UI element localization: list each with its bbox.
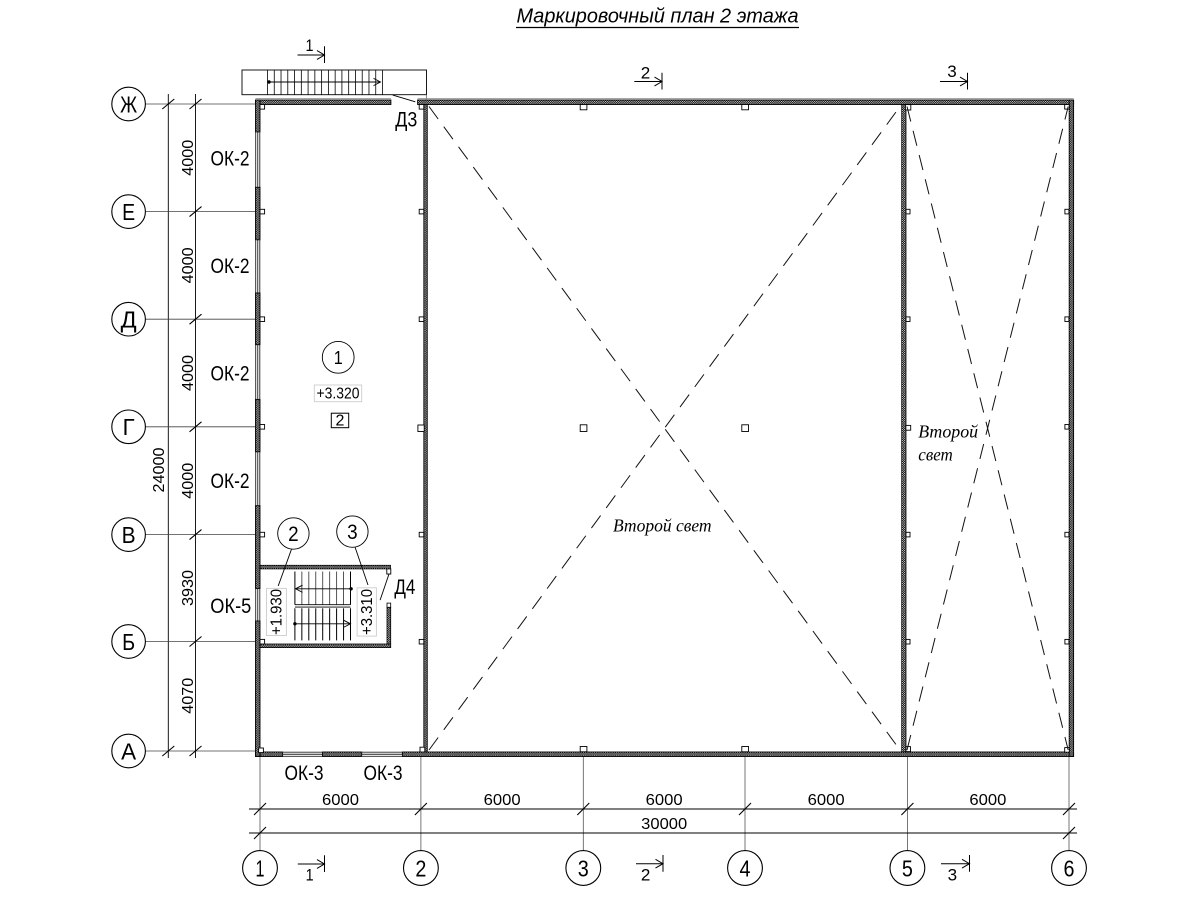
svg-text:4070: 4070: [180, 678, 197, 714]
svg-text:1: 1: [306, 36, 314, 55]
svg-text:4000: 4000: [180, 140, 197, 176]
svg-text:ОК-2: ОК-2: [211, 363, 250, 386]
svg-text:ОК-3: ОК-3: [285, 762, 324, 785]
svg-text:4000: 4000: [180, 247, 197, 283]
svg-text:1: 1: [306, 866, 314, 885]
svg-text:5: 5: [902, 856, 913, 882]
svg-text:+3.310: +3.310: [359, 589, 376, 635]
svg-text:6000: 6000: [322, 792, 359, 809]
svg-text:ОК-3: ОК-3: [364, 762, 403, 785]
svg-text:+3.320: +3.320: [317, 386, 360, 403]
svg-text:2: 2: [641, 866, 651, 885]
svg-text:3930: 3930: [180, 570, 197, 606]
svg-text:Б: Б: [122, 629, 135, 655]
svg-text:4000: 4000: [180, 355, 197, 391]
svg-text:3: 3: [948, 866, 958, 885]
svg-text:1: 1: [256, 856, 265, 882]
svg-text:2: 2: [288, 523, 299, 546]
svg-text:6000: 6000: [969, 792, 1006, 809]
svg-text:+1.930: +1.930: [269, 589, 286, 635]
svg-text:Д4: Д4: [394, 576, 415, 599]
svg-text:2: 2: [641, 64, 651, 83]
svg-text:ОК-5: ОК-5: [210, 595, 251, 618]
svg-text:2: 2: [415, 856, 426, 882]
svg-text:30000: 30000: [641, 816, 687, 833]
svg-text:Второй свет: Второй свет: [613, 515, 712, 535]
svg-text:Е: Е: [122, 199, 135, 225]
svg-text:4000: 4000: [180, 463, 197, 499]
svg-text:6000: 6000: [808, 792, 845, 809]
svg-text:24000: 24000: [151, 447, 168, 492]
svg-text:Маркировочный план 2 этажа: Маркировочный план 2 этажа: [517, 5, 799, 28]
svg-text:свет: свет: [918, 445, 953, 465]
svg-text:3: 3: [347, 521, 358, 544]
svg-text:1: 1: [334, 348, 343, 368]
svg-text:3: 3: [578, 856, 589, 882]
svg-text:Второй: Второй: [918, 422, 978, 442]
svg-text:Д3: Д3: [395, 109, 417, 132]
svg-text:А: А: [121, 738, 137, 764]
svg-text:6000: 6000: [484, 792, 521, 809]
svg-text:Г: Г: [123, 414, 136, 440]
svg-text:В: В: [122, 522, 136, 548]
svg-text:6: 6: [1064, 856, 1075, 882]
svg-text:ОК-2: ОК-2: [211, 255, 250, 278]
svg-text:ОК-2: ОК-2: [211, 147, 250, 170]
svg-text:ОК-2: ОК-2: [211, 470, 250, 493]
svg-text:4: 4: [740, 856, 751, 882]
svg-text:Д: Д: [121, 307, 137, 333]
svg-text:Ж: Ж: [120, 91, 137, 117]
svg-text:6000: 6000: [646, 792, 683, 809]
svg-text:3: 3: [947, 62, 957, 81]
svg-text:2: 2: [336, 412, 345, 429]
